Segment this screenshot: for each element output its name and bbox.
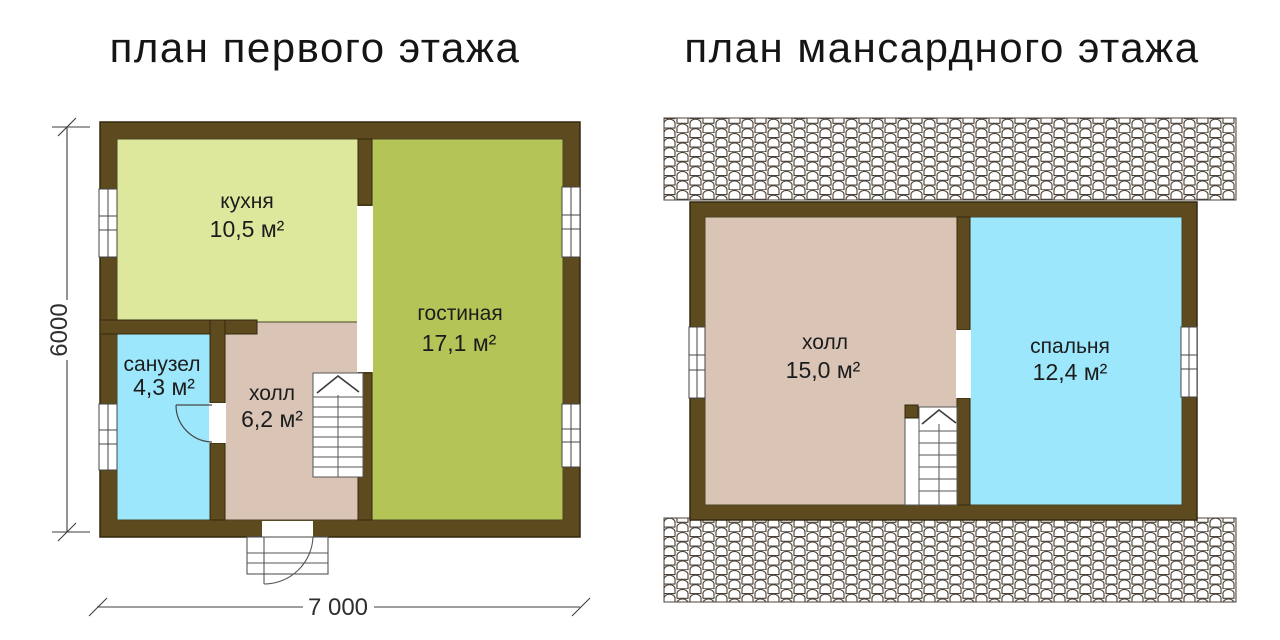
attic-floor-plan: холл 15,0 м² спальня 12,4 м²	[664, 118, 1236, 602]
staircase-first-floor	[313, 373, 363, 477]
right-plan-title: план мансардного этажа	[684, 24, 1199, 71]
living-area: 17,1 м²	[422, 330, 497, 356]
window-bedroom-right	[1181, 327, 1197, 397]
stair-newel-post	[905, 405, 918, 418]
staircase-attic	[905, 405, 957, 505]
kitchen-area: 10,5 м²	[210, 216, 285, 242]
dimension-width: 7 000	[89, 594, 590, 621]
roof-tiles-bottom	[664, 518, 1236, 602]
window-hall-left	[689, 327, 705, 398]
hall-attic-area: 15,0 м²	[786, 357, 861, 383]
bedroom-area: 12,4 м²	[1033, 359, 1108, 385]
window-kitchen-left	[99, 189, 117, 257]
window-living-right-top	[562, 187, 580, 257]
window-living-right-bottom	[562, 404, 580, 467]
hall-label: холл	[249, 382, 295, 405]
left-plan-title: план первого этажа	[110, 24, 521, 71]
floor-plan-sheet: план первого этажа план мансардного этаж…	[0, 0, 1280, 640]
window-bathroom-left	[99, 404, 117, 470]
first-floor-plan: кухня 10,5 м² гостиная 17,1 м² санузел 4…	[46, 118, 590, 621]
bedroom-label: спальня	[1030, 335, 1110, 358]
bathroom-door-opening	[209, 403, 226, 443]
floor-plan-drawing: план первого этажа план мансардного этаж…	[0, 0, 1280, 640]
bathroom-label: санузел	[124, 353, 201, 376]
kitchen-label: кухня	[220, 190, 273, 213]
living-label: гостиная	[417, 302, 502, 325]
doorway-opening-living	[357, 206, 373, 372]
hall-attic-label: холл	[802, 331, 848, 354]
roof-tiles-top	[664, 118, 1236, 200]
hall-area: 6,2 м²	[241, 406, 303, 432]
porch-steps	[247, 537, 328, 574]
entrance-opening	[262, 521, 313, 537]
dimension-height: 6000	[46, 118, 90, 541]
dimension-width-value: 7 000	[308, 594, 368, 621]
bathroom-area: 4,3 м²	[133, 374, 195, 400]
doorway-opening-bedroom	[956, 330, 971, 398]
dimension-height-value: 6000	[46, 303, 73, 356]
